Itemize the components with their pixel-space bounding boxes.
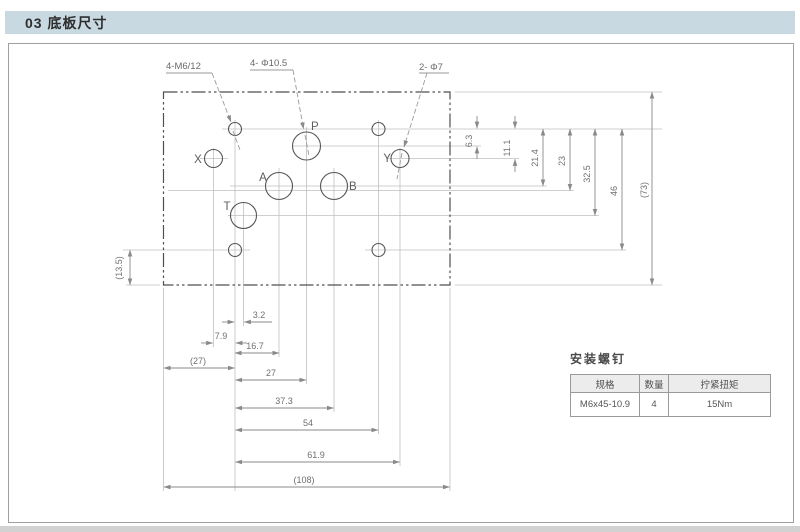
dim-text: 3.2: [253, 310, 266, 320]
dim-text: 61.9: [307, 450, 325, 460]
col-header-spec: 规格: [571, 375, 640, 393]
page-bottom-edge: [0, 526, 800, 532]
dim-text: (108): [293, 475, 314, 485]
dim-text: (27): [190, 356, 206, 366]
port-label-y: Y: [383, 153, 391, 165]
dim-text: (13.5): [114, 256, 124, 280]
dim-text: 27: [266, 368, 276, 378]
dim-text: 21.4: [530, 149, 540, 167]
label-main-ports: 4- Φ10.5: [250, 58, 287, 69]
dim-text: 46: [609, 186, 619, 196]
port-label-t: T: [223, 201, 230, 213]
dim-text: 11.1: [502, 140, 512, 157]
port-label-p: P: [311, 121, 319, 133]
cell-qty: 4: [640, 393, 669, 417]
col-header-qty: 数量: [640, 375, 669, 393]
port-label-a: A: [259, 172, 267, 184]
leader-lines: [166, 70, 449, 179]
cell-torque: 15Nm: [669, 393, 771, 417]
table-title: 安装螺钉: [570, 350, 780, 367]
label-mounting-holes: 4-M6/12: [166, 61, 201, 72]
page: 03 底板尺寸: [0, 0, 800, 532]
cell-spec: M6x45-10.9: [571, 393, 640, 417]
dim-text: (73): [639, 182, 649, 198]
port-label-x: X: [194, 154, 202, 166]
dim-text: 16.7: [246, 341, 264, 351]
dim-text: 7.9: [215, 331, 228, 341]
port-label-b: B: [349, 181, 357, 193]
mounting-screw-table: 规格 数量 拧紧扭矩 M6x45-10.9 4 15Nm: [570, 374, 771, 417]
extension-lines: [123, 92, 662, 491]
dim-text: 54: [303, 418, 313, 428]
label-pilot-ports: 2- Φ7: [419, 62, 443, 73]
col-header-torque: 拧紧扭矩: [669, 375, 771, 393]
dim-text: 6.3: [464, 135, 474, 148]
dim-text: 37.3: [275, 396, 293, 406]
dim-text: 32.5: [582, 165, 592, 183]
table-row: M6x45-10.9 4 15Nm: [571, 393, 771, 417]
technical-drawing: 4-M6/12 4- Φ10.5 2- Φ7 X P Y A B T 6.3 1…: [0, 0, 800, 532]
mounting-screw-block: 安装螺钉 规格 数量 拧紧扭矩 M6x45-10.9 4 15Nm: [570, 350, 780, 417]
dim-text: 23: [557, 156, 567, 166]
